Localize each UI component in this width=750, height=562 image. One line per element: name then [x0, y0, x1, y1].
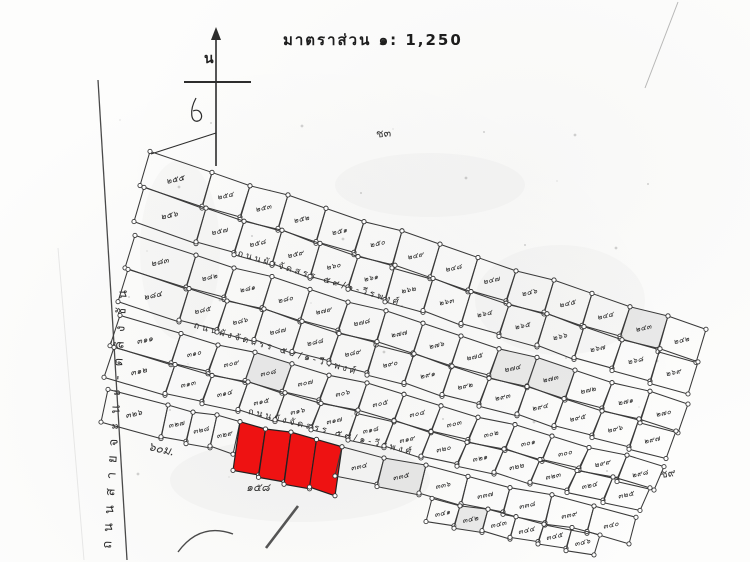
survey-pin: [307, 485, 311, 489]
survey-pin: [194, 240, 198, 244]
survey-pin: [658, 347, 662, 351]
plot-number: ๒๙๖: [606, 423, 624, 435]
plot-number: ๓๐๐: [557, 447, 574, 459]
survey-pin: [133, 233, 137, 237]
survey-pin: [356, 408, 360, 412]
survey-pin: [290, 349, 294, 353]
survey-pin: [412, 352, 416, 356]
plot-number: ๒๖๒: [400, 284, 417, 296]
survey-pin: [337, 331, 341, 335]
plot-number: ๒๖๓: [438, 295, 456, 307]
survey-pin: [634, 515, 638, 519]
survey-pin: [587, 445, 591, 449]
survey-pin: [625, 453, 629, 457]
plot-number: ๒๕๘: [248, 237, 268, 250]
survey-pin: [610, 381, 614, 385]
plot-number: ๓๐๗: [296, 377, 314, 389]
survey-pin: [308, 274, 312, 278]
survey-pin: [225, 299, 229, 303]
survey-pin: [309, 428, 313, 432]
survey-pin: [256, 475, 260, 479]
survey-pin: [300, 319, 304, 323]
survey-pin: [308, 287, 312, 291]
survey-pin: [375, 485, 379, 489]
plot-number: ๓๒๒: [508, 460, 525, 472]
survey-pin: [465, 440, 469, 444]
survey-pin: [674, 429, 678, 433]
survey-pin: [592, 553, 596, 557]
survey-pin: [601, 500, 605, 504]
survey-pin: [200, 402, 204, 406]
survey-pin: [480, 529, 484, 533]
survey-pin: [592, 504, 596, 508]
plot-number: ๓๔๕: [545, 530, 565, 543]
survey-pin: [99, 420, 103, 424]
survey-pin: [507, 303, 511, 307]
survey-pin: [327, 373, 331, 377]
survey-pin: [431, 276, 435, 280]
survey-pin: [590, 436, 594, 440]
survey-pin: [550, 434, 554, 438]
survey-pin: [246, 380, 250, 384]
plot-number: ๓๐๔: [408, 407, 427, 419]
survey-pin: [346, 287, 350, 291]
survey-pin: [627, 447, 631, 451]
survey-pin: [450, 364, 454, 368]
survey-pin: [286, 193, 290, 197]
plot-number: ๒๕๒: [293, 213, 311, 225]
cadastral-map-scan: มาตราส่วน ๑: 1,250 น ถนนสายจะนะ-ตลิ่งชัน…: [0, 0, 750, 562]
survey-pin: [419, 454, 423, 458]
survey-pin: [514, 515, 518, 519]
survey-pin: [375, 340, 379, 344]
boundary-fragment: [645, 2, 678, 88]
plot-number: ๓๐๕: [371, 397, 390, 409]
survey-pin: [459, 321, 463, 325]
survey-pin: [492, 470, 496, 474]
survey-pin: [382, 456, 386, 460]
survey-pin: [173, 362, 177, 366]
plot-number: ๒๗๑: [617, 395, 635, 407]
survey-pin: [666, 314, 670, 318]
survey-pin: [400, 229, 404, 233]
survey-pin: [582, 325, 586, 329]
survey-pin: [590, 291, 594, 295]
survey-pin: [238, 420, 242, 424]
survey-pin: [289, 430, 293, 434]
survey-pin: [356, 255, 360, 259]
survey-pin: [204, 206, 208, 210]
survey-pin: [253, 350, 257, 354]
survey-pin: [458, 504, 462, 508]
survey-pin: [112, 345, 116, 349]
plot-number: ๒๙๒: [456, 380, 474, 392]
survey-pin: [252, 337, 256, 341]
survey-pin: [346, 300, 350, 304]
plot-number: ๓๑๖: [289, 405, 306, 417]
plot-number: ๒๘๖: [231, 315, 249, 327]
survey-pin: [159, 435, 163, 439]
survey-pin: [216, 343, 220, 347]
survey-pin: [600, 409, 604, 413]
plot-number: ๒๗๖: [428, 339, 446, 351]
plot-number: ๒๖๙: [665, 366, 683, 378]
survey-pin: [424, 519, 428, 523]
survey-pin: [525, 384, 529, 388]
map-drawing: ๒๕๕๒๕๔๒๕๓๒๕๒๒๕๑๒๕๐๒๔๙๒๔๘๒๔๗๒๔๖๒๔๕๒๔๔๒๔๓๒…: [0, 0, 750, 562]
survey-pin: [466, 474, 470, 478]
plot-number: ๓๓๗: [476, 489, 494, 501]
survey-pin: [627, 542, 631, 546]
survey-pin: [290, 362, 294, 366]
survey-pin: [611, 475, 615, 479]
survey-pin: [610, 368, 614, 372]
plot-number: ๒๙๑: [419, 369, 437, 381]
survey-pin: [383, 300, 387, 304]
survey-pin: [638, 508, 642, 512]
survey-pin: [528, 480, 532, 484]
survey-pin: [191, 410, 195, 414]
survey-pin: [324, 206, 328, 210]
plot-number: ๓๑๐: [186, 347, 203, 359]
plot-number: ๓๒๕: [617, 488, 636, 500]
survey-pin: [572, 356, 576, 360]
survey-pin: [538, 458, 542, 462]
survey-pin: [562, 397, 566, 401]
survey-pin: [163, 391, 167, 395]
survey-pin: [215, 330, 219, 334]
plot-number: ๒๘๑: [239, 282, 257, 294]
survey-pin: [365, 381, 369, 385]
survey-pin: [231, 452, 235, 456]
survey-pin: [208, 444, 212, 448]
survey-pin: [648, 389, 652, 393]
survey-pin: [148, 149, 152, 153]
plot-number: ๒๕๓: [254, 201, 273, 213]
survey-pin: [664, 456, 668, 460]
north-arrow: [151, 27, 251, 166]
survey-pin: [382, 444, 386, 448]
survey-pin: [184, 442, 188, 446]
plot-number: ๒๙๗: [643, 433, 662, 445]
survey-pin: [542, 522, 546, 526]
survey-pin: [232, 266, 236, 270]
plot-number: ๒๗๘: [352, 316, 372, 329]
plot-number: ๒๙๓: [494, 391, 513, 403]
survey-pin: [429, 430, 433, 434]
plot-number: ๓๐๑: [520, 437, 537, 449]
survey-pin: [333, 494, 337, 498]
survey-pin: [476, 255, 480, 259]
plot-number: ๓๔๖: [574, 536, 592, 548]
survey-pin: [508, 486, 512, 490]
survey-pin: [486, 507, 490, 511]
plot-number: ๓๔๐: [602, 519, 620, 531]
plot-number: ๓๒๓: [544, 470, 562, 482]
survey-pin: [438, 242, 442, 246]
plot-number: ๓๑๓: [179, 378, 197, 390]
survey-pin: [270, 261, 274, 265]
survey-pin: [365, 373, 369, 377]
survey-pin: [210, 170, 214, 174]
survey-pin: [628, 305, 632, 309]
survey-pin: [106, 387, 110, 391]
survey-pin: [402, 381, 406, 385]
survey-pin: [552, 424, 556, 428]
survey-pin: [552, 278, 556, 282]
plot-number: ๓๑๘: [361, 423, 380, 435]
survey-pin: [362, 220, 366, 224]
survey-pin: [421, 321, 425, 325]
survey-pin: [392, 419, 396, 423]
survey-pin: [346, 438, 350, 442]
plot-number: ๓๔๑: [434, 507, 452, 519]
survey-pin: [598, 533, 602, 537]
survey-pin: [273, 418, 277, 422]
plot-number: ๓๐๒: [482, 428, 499, 440]
survey-pin: [232, 253, 236, 257]
plot-number: ๒๘๗: [268, 325, 287, 337]
plot-number: ๒๘๙: [343, 347, 362, 359]
survey-pin: [514, 269, 518, 273]
survey-pin: [116, 300, 120, 304]
plot-number: ๒๙๙: [593, 457, 612, 469]
plot-number: ๒๖๑: [363, 272, 380, 284]
plot-number: ๓๒๖: [125, 408, 144, 420]
survey-pin: [487, 376, 491, 380]
survey-pin: [177, 318, 181, 322]
survey-pin: [340, 445, 344, 449]
survey-pin: [402, 392, 406, 396]
survey-pin: [452, 526, 456, 530]
survey-pin: [262, 307, 266, 311]
plot-number: ๓๓๖: [434, 479, 451, 491]
survey-pin: [242, 219, 246, 223]
survey-pin: [648, 381, 652, 385]
survey-pin: [565, 490, 569, 494]
plot-number: ๓๓๙: [560, 509, 578, 521]
plot-number: ๒๖๐: [325, 260, 342, 272]
survey-pin: [231, 468, 235, 472]
survey-pin: [194, 253, 198, 257]
survey-pin: [179, 331, 183, 335]
plot-number: ๓๒๑: [471, 452, 488, 464]
plot-number: ๒๗๐: [655, 407, 673, 419]
plot-number: ๒๔๒: [673, 334, 691, 346]
survey-pin: [648, 486, 652, 490]
main-road-line: [98, 80, 127, 560]
survey-pin: [477, 404, 481, 408]
plot-number: ๒๘๘: [306, 335, 326, 348]
plot-number: ๓๐๙: [222, 357, 240, 369]
plot-number: ๒๕๐: [369, 237, 387, 249]
handwritten-mark: [192, 98, 202, 121]
survey-pin: [570, 525, 574, 529]
survey-pin: [333, 474, 337, 478]
survey-pin: [564, 549, 568, 553]
plot-number: ๒๙๔: [531, 400, 550, 413]
plot-number: ๒๘๐: [277, 293, 295, 305]
survey-pin: [430, 496, 434, 500]
plot-number: ๒๗๗: [390, 327, 409, 339]
survey-pin: [508, 535, 512, 539]
survey-pin: [455, 464, 459, 468]
plot-number: ๓๑๙: [398, 433, 416, 445]
survey-pin: [502, 447, 506, 451]
plot-number: ๒๙๐: [381, 358, 399, 370]
plot-number: ๒๙๘: [631, 467, 650, 480]
survey-pin: [535, 355, 539, 359]
survey-pin: [210, 373, 214, 377]
survey-pin: [102, 375, 106, 379]
survey-pin: [615, 479, 619, 483]
survey-pin: [318, 241, 322, 245]
plot-number: ๓๒๙: [216, 428, 234, 440]
survey-pin: [421, 308, 425, 312]
survey-pin: [620, 338, 624, 342]
survey-pin: [696, 360, 700, 364]
plot-number: ๒๕๔: [216, 189, 236, 202]
plot-number: ๒๔๘: [444, 261, 464, 274]
survey-pin: [187, 286, 191, 290]
plot-number: ๒๙๕: [568, 411, 587, 424]
survey-pin: [138, 183, 142, 187]
survey-pin: [515, 412, 519, 416]
survey-pin: [248, 184, 252, 188]
survey-pin: [417, 491, 421, 495]
plot-number: ๓๑๒: [130, 365, 149, 377]
survey-pin: [126, 267, 130, 271]
survey-pin: [384, 309, 388, 313]
survey-pin: [637, 417, 641, 421]
survey-pin: [263, 427, 267, 431]
plot-number: ๒๕๙: [286, 248, 305, 260]
plot-number: ๓๑๕: [252, 395, 271, 407]
survey-pin: [573, 368, 577, 372]
survey-pin: [662, 465, 666, 469]
survey-pin: [545, 312, 549, 316]
plot-number: ๒๗๙: [314, 304, 333, 316]
plot-number: ๒๔๙: [406, 249, 425, 261]
plot-number: ๓๔๔: [517, 524, 537, 537]
survey-pin: [118, 313, 122, 317]
plot-number: ๓๑๔: [216, 387, 235, 399]
survey-pin: [469, 290, 473, 294]
plot-number: ๓๐๖: [334, 387, 351, 399]
plot-number: ๓๐๓: [445, 417, 463, 429]
survey-pin: [283, 391, 287, 395]
survey-pin: [513, 423, 517, 427]
plot-number: ๓๒๐: [435, 443, 452, 455]
survey-pin: [704, 327, 708, 331]
survey-pin: [236, 407, 240, 411]
plot-number: ๓๒๗: [167, 418, 185, 430]
survey-pin: [686, 402, 690, 406]
survey-pin: [142, 185, 146, 189]
survey-pin: [132, 219, 136, 223]
survey-pin: [319, 401, 323, 405]
survey-pin: [270, 274, 274, 278]
scan-fold-line: [58, 248, 84, 560]
plot-number: ๓๓๘: [518, 499, 537, 512]
survey-pin: [314, 437, 318, 441]
survey-pin: [393, 263, 397, 267]
plot-number: ๓๒๘: [192, 423, 211, 435]
survey-pin: [459, 334, 463, 338]
survey-pin: [440, 392, 444, 396]
plot-number: ๒๖๗: [589, 342, 607, 354]
survey-pin: [575, 468, 579, 472]
survey-pin: [497, 347, 501, 351]
survey-pin: [166, 403, 170, 407]
survey-pin: [550, 493, 554, 497]
survey-pin: [424, 463, 428, 467]
survey-pin: [280, 228, 284, 232]
plot-number: ๓๔๓: [489, 518, 508, 530]
survey-pin: [476, 415, 480, 419]
survey-pin: [215, 413, 219, 417]
survey-pin: [282, 482, 286, 486]
survey-pin: [535, 343, 539, 347]
plot-number: ๒๗๕: [465, 350, 485, 363]
survey-pin: [439, 404, 443, 408]
survey-pin: [327, 361, 331, 365]
plot-number: ๓๑๗: [325, 414, 343, 426]
plot-number: ๒๕๑: [331, 225, 349, 237]
survey-pin: [652, 488, 656, 492]
plot-number: ๓๒๔: [580, 479, 599, 491]
survey-pin: [536, 542, 540, 546]
plot-number: ๒๗๒: [579, 384, 597, 396]
survey-pin: [497, 334, 501, 338]
plot-number: ๓๑๑: [136, 334, 155, 346]
survey-pin: [686, 392, 690, 396]
plot-number: ๒๖๘: [627, 354, 646, 366]
